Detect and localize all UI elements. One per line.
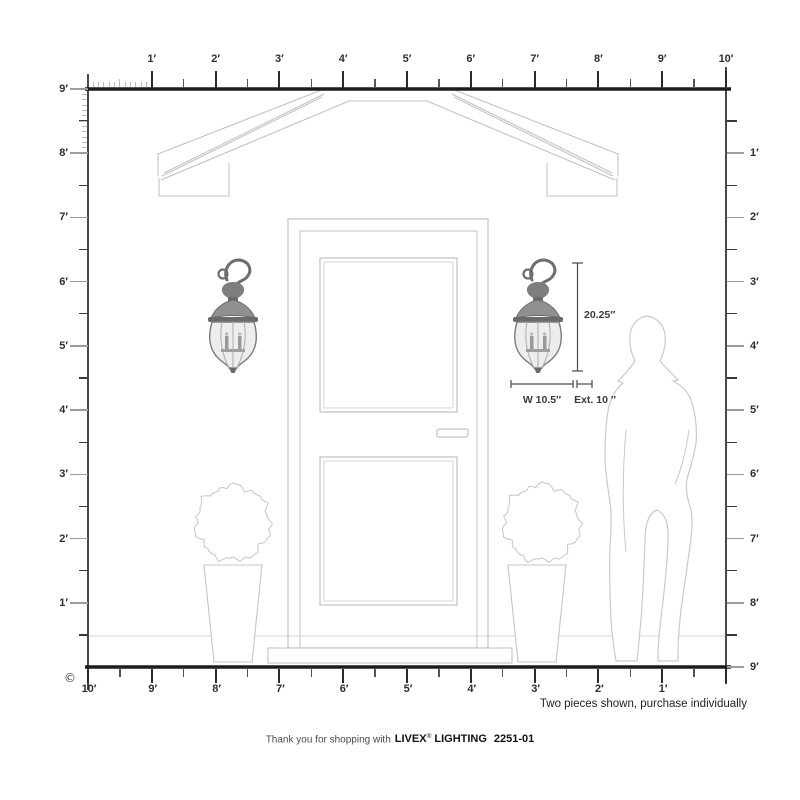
ruler-minor-tick-left (79, 570, 88, 571)
ruler-minor-tick-top (693, 79, 694, 88)
ruler-label-left: 6′ (38, 275, 68, 289)
ruler-inch-tick-top (103, 82, 104, 88)
ruler-tick-right (727, 538, 744, 540)
ruler-label-right: 6′ (750, 467, 780, 481)
ruler-minor-tick-right (727, 442, 737, 443)
door-handle (437, 429, 468, 437)
ruler-minor-tick-bottom (311, 669, 312, 677)
ruler-label-top: 5′ (391, 52, 423, 66)
ruler-label-left: 1′ (38, 596, 68, 610)
ruler-inch-tick-left (82, 126, 88, 127)
ruler-tick-top (406, 71, 408, 88)
ruler-minor-tick-bottom (693, 669, 694, 677)
ruler-tick-bottom (406, 669, 408, 683)
ruler-label-bottom: 2′ (583, 682, 615, 696)
ruler-minor-tick-bottom (502, 669, 503, 677)
ruler-minor-tick-top (311, 79, 312, 88)
ruler-minor-tick-right (727, 570, 737, 571)
ruler-tick-top (215, 71, 217, 88)
ruler-tick-bottom (725, 669, 727, 683)
wall-lantern-left (208, 260, 258, 373)
planter-pot (204, 565, 262, 662)
ruler-tick-left (70, 88, 88, 90)
ruler-label-right: 5′ (750, 403, 780, 417)
ruler-label-top: 6′ (455, 52, 487, 66)
ruler-label-right: 7′ (750, 532, 780, 546)
ruler-label-left: 3′ (38, 467, 68, 481)
ruler-inch-tick-top (146, 82, 147, 88)
ruler-label-bottom: 7′ (264, 682, 296, 696)
ruler-inch-tick-top (98, 82, 99, 88)
ruler-minor-tick-left (79, 377, 88, 378)
ruler-minor-tick-left (79, 506, 88, 507)
ruler-tick-bottom (661, 669, 663, 683)
ruler-tick-right (727, 217, 744, 219)
ruler-label-top: 1′ (136, 52, 168, 66)
ruler-minor-tick-bottom (247, 669, 248, 677)
brand-name: LIVEX (395, 733, 427, 745)
ruler-label-top: 10′ (710, 52, 742, 66)
registered-mark-icon: ® (427, 733, 432, 740)
ruler-tick-top (470, 71, 472, 88)
ruler-tick-left (70, 602, 88, 604)
ruler-label-top: 7′ (519, 52, 551, 66)
ruler-minor-tick-right (727, 185, 737, 186)
ruler-tick-right (727, 474, 744, 476)
line-drawing (0, 0, 800, 800)
planter-pot (508, 565, 566, 662)
ruler-label-top: 8′ (582, 52, 614, 66)
ruler-label-bottom: 10′ (73, 682, 105, 696)
ruler-minor-tick-right (727, 313, 737, 314)
ruler-tick-left (70, 217, 88, 219)
roof-outline (158, 89, 618, 196)
ruler-tick-right (727, 666, 744, 668)
ruler-minor-tick-left (79, 185, 88, 186)
ruler-tick-bottom (597, 669, 599, 683)
ruler-minor-tick-left (79, 249, 88, 250)
ruler-minor-tick-bottom (119, 669, 120, 677)
ruler-label-bottom: 9′ (137, 682, 169, 696)
ruler-minor-tick-top (502, 79, 503, 88)
ruler-tick-top (278, 71, 280, 88)
ruler-label-left: 9′ (38, 82, 68, 96)
ruler-inch-tick-left (82, 94, 88, 95)
topiary-ball (502, 482, 582, 563)
ruler-tick-right (727, 152, 744, 154)
ruler-minor-tick-right (727, 377, 737, 378)
ruler-label-right: 2′ (750, 210, 780, 224)
ruler-minor-tick-left (79, 634, 88, 635)
ruler-inch-tick-left (82, 147, 88, 148)
ruler-label-top: 9′ (646, 52, 678, 66)
ruler-minor-tick-right (727, 120, 737, 121)
ruler-tick-right (727, 345, 744, 347)
ruler-inch-tick-top (114, 82, 115, 88)
ruler-tick-top (661, 71, 663, 88)
topiary-ball (194, 483, 272, 562)
ruler-label-right: 3′ (750, 275, 780, 289)
ruler-inch-tick-top (93, 82, 94, 88)
dimension-extension-label: Ext. 10 ″ (566, 394, 624, 406)
ruler-minor-tick-top (566, 79, 567, 88)
ruler-label-left: 2′ (38, 532, 68, 546)
ruler-tick-left (70, 345, 88, 347)
purchase-note: Two pieces shown, purchase individually (540, 698, 747, 710)
ruler-tick-top (151, 71, 153, 88)
copyright-icon: © (64, 671, 76, 685)
size-chart-canvas: 1′2′3′4′5′6′7′8′9′10′9′8′7′6′5′4′3′2′1′1… (0, 0, 800, 800)
ruler-minor-tick-left (79, 442, 88, 443)
ruler-tick-left (70, 474, 88, 476)
ruler-inch-tick-left (79, 121, 87, 122)
ruler-label-right: 1′ (750, 146, 780, 160)
ruler-inch-tick-left (82, 142, 88, 143)
ruler-label-right: 4′ (750, 339, 780, 353)
ruler-minor-tick-bottom (183, 669, 184, 677)
ruler-label-bottom: 6′ (328, 682, 360, 696)
ruler-inch-tick-left (82, 131, 88, 132)
ruler-minor-tick-bottom (566, 669, 567, 677)
ruler-label-bottom: 4′ (456, 682, 488, 696)
ruler-tick-right (727, 602, 744, 604)
ruler-label-left: 7′ (38, 210, 68, 224)
ruler-tick-bottom (342, 669, 344, 683)
ruler-minor-tick-top (438, 79, 439, 88)
ruler-label-top: 3′ (263, 52, 295, 66)
ruler-tick-left (70, 538, 88, 540)
ruler-tick-bottom (215, 669, 217, 683)
ruler-inch-tick-top (130, 82, 131, 88)
ruler-minor-tick-top (630, 79, 631, 88)
ruler-minor-tick-bottom (374, 669, 375, 677)
ruler-inch-tick-top (135, 82, 136, 88)
woman-silhouette (605, 316, 696, 661)
ruler-minor-tick-right (727, 634, 737, 635)
ruler-inch-tick-left (82, 105, 88, 106)
planter-left (194, 483, 272, 662)
ruler-inch-tick-left (82, 115, 88, 116)
ruler-label-left: 5′ (38, 339, 68, 353)
ruler-tick-left (70, 409, 88, 411)
ruler-tick-top (725, 71, 727, 88)
ruler-minor-tick-top (374, 79, 375, 88)
ruler-tick-bottom (534, 669, 536, 683)
ruler-inch-tick-top (109, 82, 110, 88)
door-step (268, 648, 512, 663)
ruler-minor-tick-bottom (630, 669, 631, 677)
ruler-inch-tick-left (82, 137, 88, 138)
ruler-label-bottom: 8′ (201, 682, 233, 696)
ruler-label-bottom: 5′ (392, 682, 424, 696)
ruler-tick-right (727, 281, 744, 283)
ruler-tick-bottom (87, 669, 89, 683)
ruler-label-top: 2′ (200, 52, 232, 66)
ruler-inch-tick-left (82, 110, 88, 111)
ruler-tick-top (597, 71, 599, 88)
wall-lantern-right (513, 260, 563, 373)
footer-thanks-line: Thank you for shopping withLIVEX®LIGHTIN… (0, 733, 800, 745)
ruler-tick-bottom (151, 669, 153, 683)
ruler-inch-tick-left (82, 99, 88, 100)
ruler-label-bottom: 1′ (647, 682, 679, 696)
ruler-label-top: 4′ (327, 52, 359, 66)
ruler-label-left: 8′ (38, 146, 68, 160)
brand-name-2: LIGHTING (434, 733, 487, 745)
planter-right (502, 482, 582, 662)
ruler-minor-tick-top (247, 79, 248, 88)
ruler-minor-tick-top (183, 79, 184, 88)
door (288, 219, 488, 648)
ruler-tick-top (534, 71, 536, 88)
ruler-label-right: 9′ (750, 660, 780, 674)
ruler-tick-right (727, 409, 744, 411)
ruler-tick-bottom (278, 669, 280, 683)
ruler-minor-tick-left (79, 313, 88, 314)
ruler-minor-tick-right (727, 506, 737, 507)
dimension-height-label: 20.25″ (584, 309, 615, 321)
ruler-inch-tick-top (141, 82, 142, 88)
ruler-inch-tick-top (119, 79, 120, 87)
ruler-label-right: 8′ (750, 596, 780, 610)
model-number: 2251-01 (494, 733, 534, 745)
ruler-tick-left (70, 281, 88, 283)
ruler-tick-left (70, 152, 88, 154)
ruler-minor-tick-right (727, 249, 737, 250)
ruler-label-left: 4′ (38, 403, 68, 417)
ruler-inch-tick-top (125, 82, 126, 88)
ruler-label-bottom: 3′ (520, 682, 552, 696)
ruler-minor-tick-bottom (438, 669, 439, 677)
ruler-tick-bottom (470, 669, 472, 683)
dimension-width-label: W 10.5″ (512, 394, 572, 406)
ruler-tick-top (342, 71, 344, 88)
thanks-text: Thank you for shopping with (266, 734, 391, 745)
